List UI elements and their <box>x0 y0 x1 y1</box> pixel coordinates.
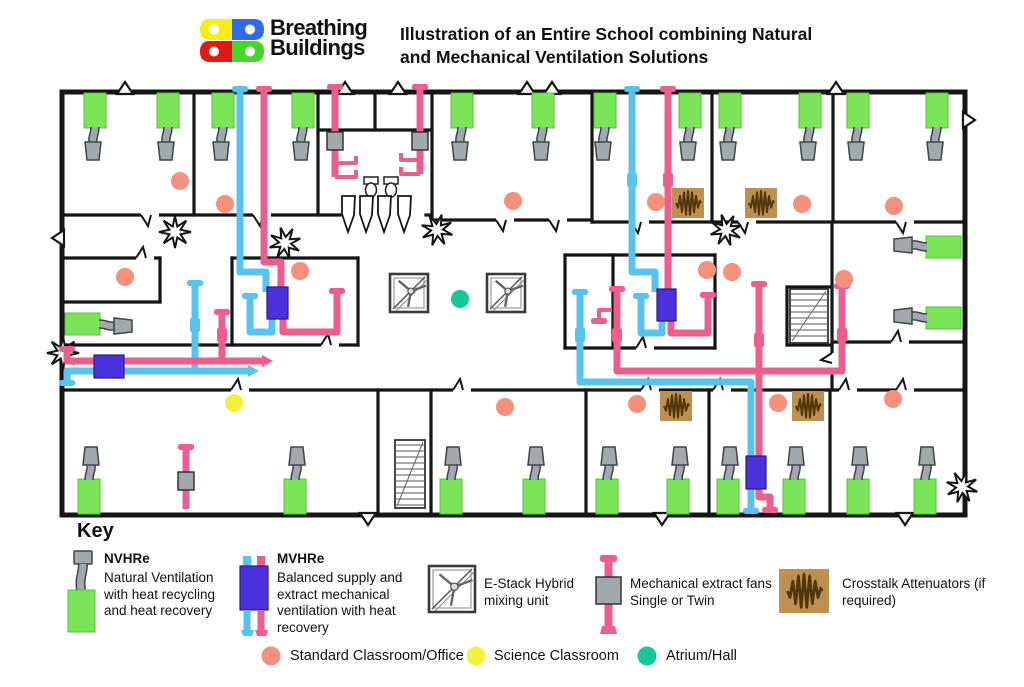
pipe-joint <box>612 328 622 342</box>
mvhre-unit <box>657 289 676 321</box>
pipe-cap <box>178 444 194 450</box>
breathing-buildings-logo <box>200 19 264 62</box>
pipe-cap <box>660 86 676 92</box>
key-mvhre-icon <box>240 556 268 636</box>
attenuator <box>672 188 704 218</box>
vent-chevron <box>390 82 406 94</box>
room-dot-standard <box>723 263 741 281</box>
pipe-cap <box>327 84 343 90</box>
page-title-line2: and Mechanical Ventilation Solutions <box>400 46 708 69</box>
legend-science-label: Science Classroom <box>494 648 619 664</box>
key-estack-desc: E-Stack Hybrid mixing unit <box>484 576 586 609</box>
pipe-joint <box>754 333 764 347</box>
pipe-cap <box>591 318 607 324</box>
room-dot-standard <box>116 268 134 286</box>
key-extract-fan-icon <box>596 555 621 634</box>
vent-chevron <box>828 82 844 94</box>
toilet <box>384 177 398 197</box>
pipe-cap <box>242 293 258 299</box>
pipe-cap <box>232 86 248 92</box>
pipe-joint <box>837 328 847 342</box>
pipe-cap <box>743 508 759 514</box>
mvhre-unit <box>746 456 766 489</box>
pipe-cap <box>762 507 778 513</box>
science-room-dot <box>467 647 486 666</box>
staircase <box>790 289 828 343</box>
pipe-cap <box>214 309 230 315</box>
room-dot-standard <box>171 172 189 190</box>
pipe-joint <box>575 328 585 342</box>
key-nvhre-icon <box>68 551 95 632</box>
pipe-cap <box>633 293 649 299</box>
estack-unit <box>390 274 428 312</box>
vent-chevron <box>117 82 133 94</box>
vent-chevron <box>519 82 535 94</box>
pipe-cap <box>412 84 428 90</box>
legend-atrium-label: Atrium/Hall <box>666 648 737 664</box>
extract-fan <box>412 132 428 150</box>
pipe-cap <box>256 86 272 92</box>
room-dot-standard <box>698 261 716 279</box>
vent-chevron <box>654 513 670 525</box>
attenuator <box>792 391 824 421</box>
pipe-cap <box>329 288 345 294</box>
vent-chevron <box>963 112 975 128</box>
extract-fan <box>327 132 343 150</box>
attenuator <box>660 391 692 421</box>
room-dot-atrium <box>451 290 469 308</box>
room-dot-standard <box>885 197 903 215</box>
pipe-cap <box>700 292 716 298</box>
key-estack-icon <box>429 566 475 612</box>
room-dot-standard <box>291 262 309 280</box>
pipe-cap <box>59 346 75 352</box>
pipe-cap <box>751 281 767 287</box>
pipe-cap <box>572 289 588 295</box>
key-nvhre-title: NVHRe <box>104 551 150 566</box>
pipe-joint <box>627 173 637 187</box>
room-dot-standard <box>884 390 902 408</box>
estack-unit <box>487 274 525 312</box>
standard-room-dot <box>262 647 281 666</box>
key-mvhre-desc: Balanced supply and extract mechanical v… <box>277 570 413 636</box>
key-attenuator-desc: Crosstalk Attenuators (if required) <box>842 576 990 609</box>
room-dot-standard <box>793 195 811 213</box>
room-dot-standard <box>496 398 514 416</box>
page: Breathing Buildings Illustration of an E… <box>0 0 1024 687</box>
legend-standard-label: Standard Classroom/Office <box>290 648 464 664</box>
key-nvhre-desc: Natural Ventilation with heat recycling … <box>104 570 230 620</box>
pipe-cap <box>187 280 203 286</box>
vent-chevron <box>360 513 376 525</box>
room-dot-standard <box>769 394 787 412</box>
room-dot-standard <box>504 192 522 210</box>
key-heading: Key <box>77 520 114 543</box>
key-mvhre-title: MVHRe <box>277 551 324 566</box>
room-dot-science <box>225 394 243 412</box>
pipe-cap <box>624 86 640 92</box>
staircase <box>395 440 425 508</box>
logo-text-line2: Buildings <box>270 38 365 58</box>
attenuator <box>745 188 777 218</box>
mvhre-unit <box>267 287 288 319</box>
key-extract-desc: Mechanical extract fans Single or Twin <box>630 576 790 609</box>
room-dot-standard <box>628 395 646 413</box>
pipe-joint <box>663 173 673 187</box>
pipe-cap <box>59 380 75 386</box>
toilet <box>364 177 378 197</box>
louvre-burst <box>159 216 191 248</box>
vent-chevron <box>52 230 64 246</box>
room-dot-standard <box>647 193 665 211</box>
pipe-joint <box>190 318 200 332</box>
atrium-room-dot <box>638 647 657 666</box>
vent-chevron <box>544 82 560 94</box>
room-dot-standard <box>835 270 853 288</box>
mvhre-unit <box>94 355 124 378</box>
page-title-line1: Illustration of an Entire School combini… <box>400 23 812 46</box>
extract-fan <box>178 472 194 490</box>
room-dot-standard <box>216 195 234 213</box>
vent-chevron <box>897 513 913 525</box>
pipe-joint <box>217 328 227 342</box>
pipe-cap <box>609 286 625 292</box>
